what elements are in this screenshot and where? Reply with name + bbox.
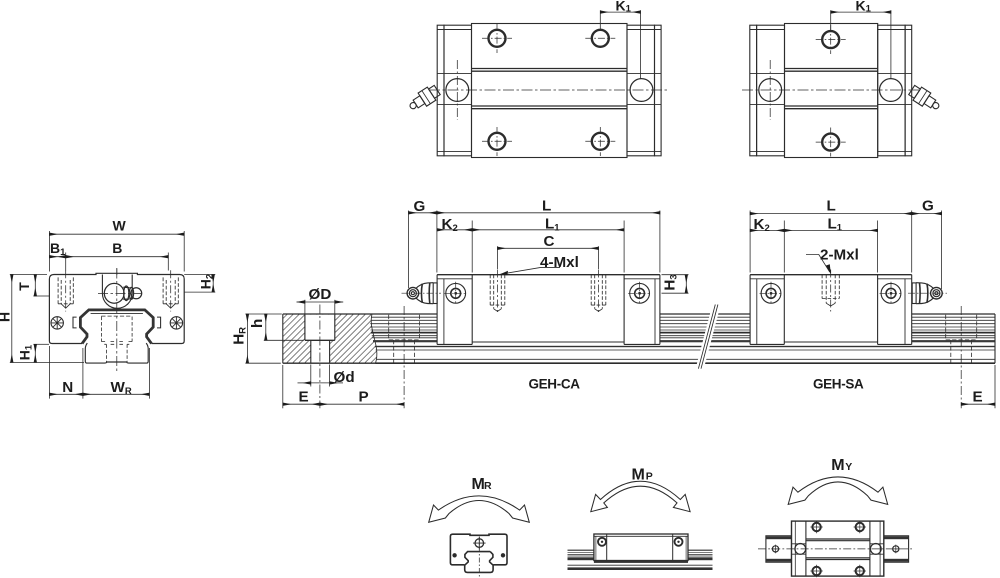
svg-text:E: E: [973, 389, 983, 406]
svg-text:Y: Y: [845, 461, 852, 473]
svg-text:H: H: [0, 312, 13, 322]
svg-text:h: h: [249, 319, 266, 328]
svg-text:P: P: [646, 471, 653, 483]
svg-text:R: R: [484, 480, 492, 492]
svg-text:B: B: [112, 240, 122, 256]
svg-text:C: C: [544, 233, 555, 250]
svg-text:G: G: [414, 198, 426, 215]
svg-text:2-Mxl: 2-Mxl: [820, 246, 859, 263]
svg-text:W: W: [113, 218, 127, 234]
svg-text:N: N: [62, 379, 73, 396]
svg-text:M: M: [472, 476, 485, 493]
svg-text:GEH-CA: GEH-CA: [529, 377, 581, 392]
svg-text:M: M: [831, 457, 844, 474]
svg-text:GEH-SA: GEH-SA: [813, 377, 864, 392]
svg-text:ØD: ØD: [309, 286, 332, 303]
svg-text:G: G: [922, 197, 934, 214]
svg-text:P: P: [359, 389, 369, 406]
svg-text:E: E: [299, 389, 309, 406]
svg-text:L: L: [827, 198, 836, 215]
svg-text:L: L: [542, 198, 551, 215]
svg-text:T: T: [16, 282, 32, 291]
svg-text:4-Mxl: 4-Mxl: [540, 254, 579, 271]
svg-text:Ød: Ød: [334, 369, 355, 386]
